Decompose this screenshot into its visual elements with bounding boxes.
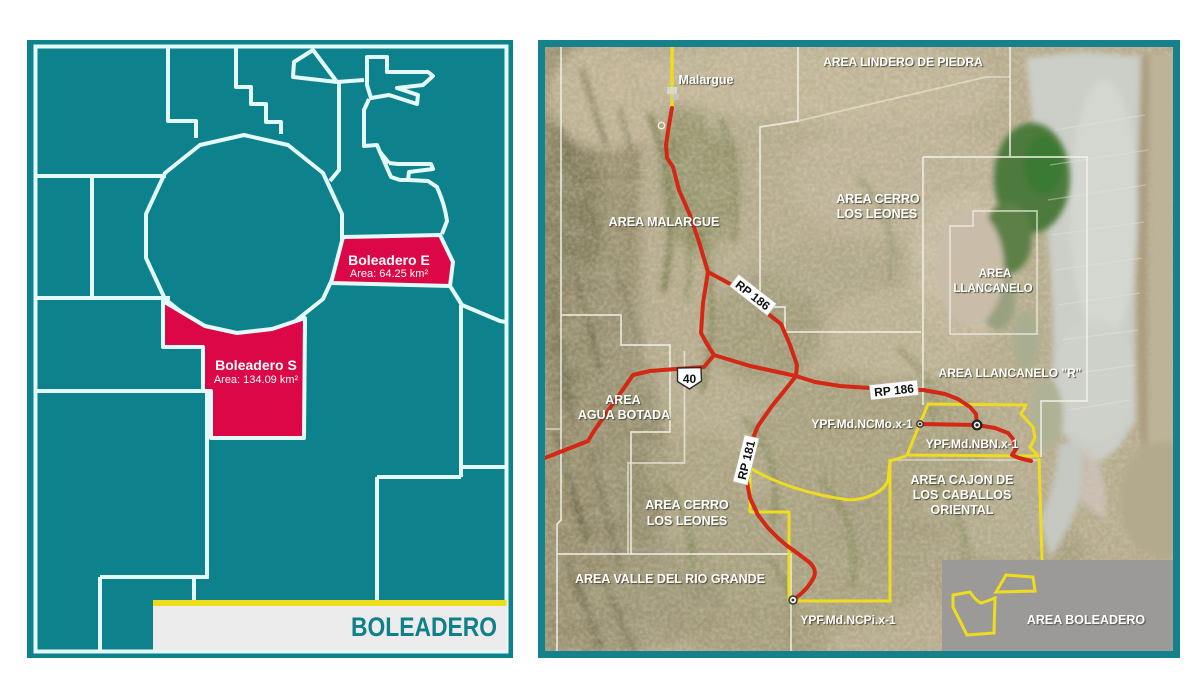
- svg-text:AREA CERRO: AREA CERRO: [836, 192, 920, 206]
- svg-text:ORIENTAL: ORIENTAL: [931, 503, 994, 517]
- svg-text:AREA BOLEADERO: AREA BOLEADERO: [1027, 613, 1146, 627]
- svg-text:AREA: AREA: [979, 268, 1012, 280]
- svg-text:LLANCANELO: LLANCANELO: [953, 283, 1032, 295]
- svg-text:AREA LINDERO DE PIEDRA: AREA LINDERO DE PIEDRA: [823, 55, 983, 69]
- svg-text:LOS CABALLOS: LOS CABALLOS: [913, 488, 1012, 502]
- svg-text:AREA VALLE DEL RIO GRANDE: AREA VALLE DEL RIO GRANDE: [575, 572, 765, 586]
- svg-text:Malargue: Malargue: [679, 73, 734, 87]
- svg-text:BOLEADERO: BOLEADERO: [351, 612, 497, 642]
- svg-text:LOS LEONES: LOS LEONES: [647, 514, 728, 528]
- svg-text:YPF.Md.NCPi.x-1: YPF.Md.NCPi.x-1: [800, 613, 896, 627]
- svg-text:YPF.Md.NBN.x-1: YPF.Md.NBN.x-1: [926, 437, 1019, 451]
- svg-text:AREA CERRO: AREA CERRO: [645, 498, 729, 512]
- svg-text:AGUA BOTADA: AGUA BOTADA: [578, 408, 670, 422]
- svg-text:Boleadero E: Boleadero E: [348, 252, 430, 268]
- svg-text:Area: 64.25 km²: Area: 64.25 km²: [350, 268, 429, 280]
- svg-text:AREA: AREA: [605, 393, 640, 407]
- svg-text:YPF.Md.NCMo.x-1: YPF.Md.NCMo.x-1: [811, 417, 913, 431]
- svg-text:AREA LLANCANELO "R": AREA LLANCANELO "R": [939, 366, 1082, 380]
- svg-text:LOS LEONES: LOS LEONES: [837, 207, 918, 221]
- svg-text:AREA MALARGUE: AREA MALARGUE: [609, 215, 720, 229]
- svg-text:Boleadero S: Boleadero S: [215, 357, 297, 373]
- svg-text:40: 40: [683, 372, 697, 386]
- svg-text:Area: 134.09 km²: Area: 134.09 km²: [214, 374, 299, 386]
- svg-text:AREA CAJON DE: AREA CAJON DE: [910, 473, 1013, 487]
